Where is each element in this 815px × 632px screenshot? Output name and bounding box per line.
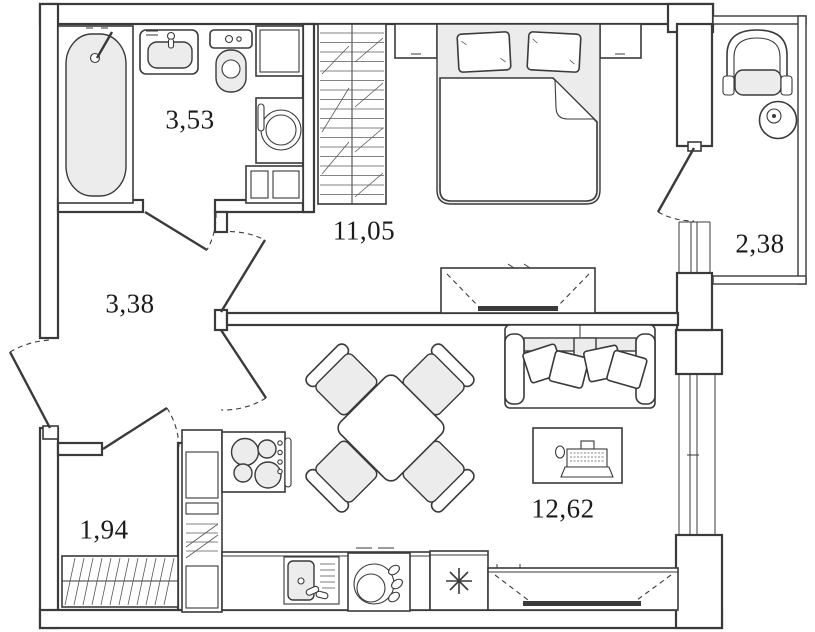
bathroom-low-cabinet	[246, 166, 303, 203]
bathroom-door	[145, 212, 216, 250]
freezer	[430, 551, 488, 610]
room-label-balcony: 2,38	[735, 229, 784, 260]
wardrobe	[318, 24, 386, 204]
balcony-door-window	[679, 222, 710, 273]
kitchen-tall-cabinet	[182, 430, 222, 612]
toilet	[210, 30, 252, 92]
room-label-storage: 1,94	[79, 515, 128, 546]
dining-set	[304, 342, 477, 515]
room-label-living-kitchen: 12,62	[531, 494, 594, 525]
storage-door	[103, 408, 179, 449]
room-label-bedroom: 11,05	[333, 216, 395, 247]
living-room-window	[679, 374, 715, 535]
sofa	[505, 325, 655, 408]
storage-shelving	[62, 556, 178, 607]
bathroom-washing-machine	[256, 98, 303, 163]
sofa-armrest-left	[505, 334, 524, 404]
desk	[533, 428, 622, 483]
kitchen-washing-machine	[348, 548, 410, 611]
kitchen-sink	[284, 557, 339, 604]
room-label-bathroom: 3,53	[165, 105, 214, 136]
stove	[222, 432, 291, 492]
bathroom-sink	[140, 30, 198, 74]
living-tv-screen	[523, 601, 641, 606]
balcony-table	[760, 102, 797, 139]
bathtub	[58, 26, 133, 203]
bathroom-cabinet	[256, 26, 303, 76]
nightstand-left	[395, 24, 437, 58]
desk-mug	[556, 446, 565, 458]
bedroom-tv-cabinet	[441, 264, 595, 313]
living-tv-stand	[488, 564, 678, 610]
floor-plan: 3,53 11,05 3,38 2,38 1,94 12,62	[0, 0, 815, 632]
room-label-hallway: 3,38	[105, 289, 154, 320]
balcony-door	[658, 142, 701, 221]
bed-pillow-left	[457, 32, 511, 73]
bedroom-tv-screen	[478, 306, 558, 311]
bedroom-door	[221, 232, 265, 312]
stove-handle	[285, 438, 291, 487]
balcony-armchair	[723, 30, 792, 95]
living-room-door	[221, 330, 266, 410]
bed-pillow-right	[527, 32, 581, 73]
entrance-door	[10, 340, 58, 439]
nightstand-right	[600, 24, 641, 58]
double-bed	[437, 24, 600, 204]
